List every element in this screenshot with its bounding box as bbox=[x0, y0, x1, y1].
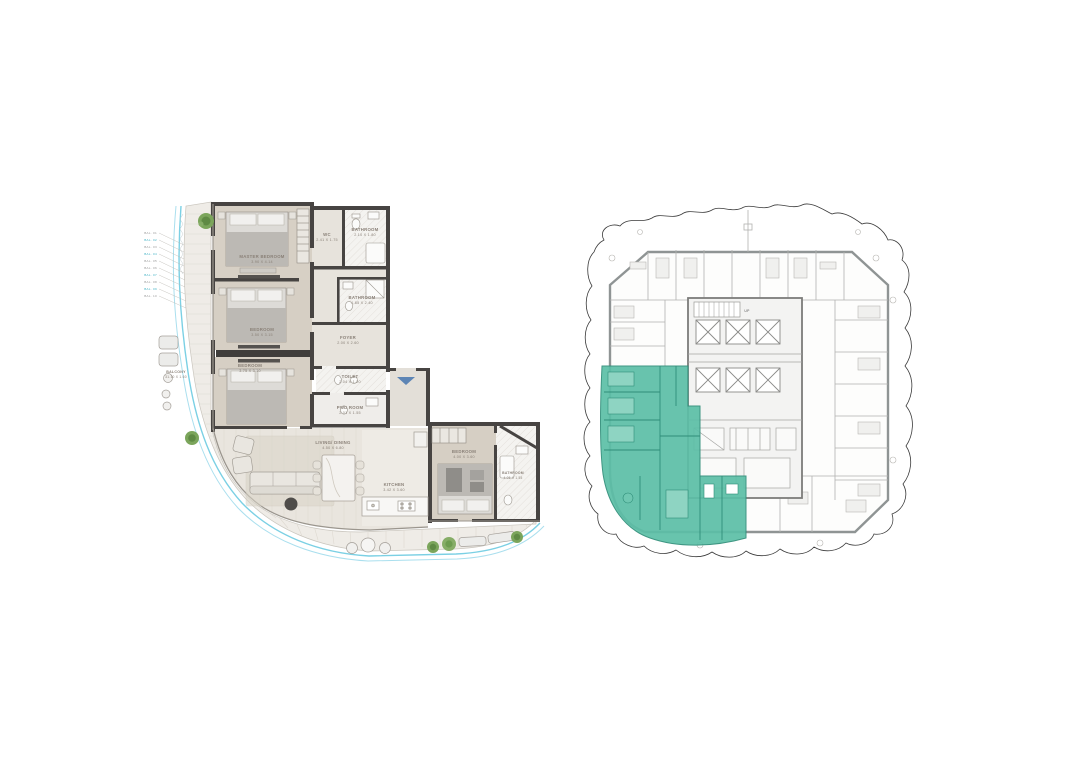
tv-console-1 bbox=[238, 275, 280, 279]
callout-label: BAL. 05 bbox=[144, 259, 157, 263]
bed-3 bbox=[219, 369, 294, 424]
tv-console-2 bbox=[238, 345, 280, 349]
callout-label: BAL. 01 bbox=[144, 231, 157, 235]
room-label-kitchen: KITCHEN bbox=[384, 482, 405, 487]
room-label-bathroom-top: BATHROOM bbox=[352, 227, 379, 232]
callout-label: BAL. 08 bbox=[144, 280, 157, 284]
room-dims: 1.85 X 2.40 bbox=[351, 301, 373, 305]
callout-label: BAL. 07 bbox=[144, 273, 157, 277]
rug bbox=[246, 436, 334, 506]
room-dims: 31.10 X 1.60 bbox=[165, 375, 187, 379]
keyplan-building: UP bbox=[601, 210, 896, 548]
room-dims: 3.42 X 3.60 bbox=[383, 488, 405, 492]
room-label-living-dining: LIVING/ DINING bbox=[315, 440, 351, 445]
callout-label: BAL. 03 bbox=[144, 245, 157, 249]
tv-console-3 bbox=[238, 359, 280, 363]
callout-label: BAL. 04 bbox=[144, 252, 157, 256]
room-dims: 4.00 X 3.60 bbox=[453, 455, 475, 459]
callout-label: BAL. 02 bbox=[144, 238, 157, 242]
room-dims: 3.50 X 3.15 bbox=[251, 333, 273, 337]
room-dims: 3.75 X 3.10 bbox=[239, 369, 261, 373]
room-label-master-bedroom: MASTER BEDROOM bbox=[239, 254, 284, 259]
side-table bbox=[285, 498, 298, 511]
fridge bbox=[414, 432, 427, 447]
room-label-balcony: BALCONY bbox=[166, 370, 186, 374]
room-label-bathroom-right: BATHROOM bbox=[502, 471, 524, 475]
room-label-pwd-room: PWD ROOM bbox=[337, 405, 364, 410]
armchair-2 bbox=[232, 456, 253, 475]
bed-4 bbox=[438, 464, 492, 514]
callout-label: BAL. 09 bbox=[144, 287, 157, 291]
keyplan-core: UP bbox=[688, 298, 802, 498]
room-label-toilet: TOILET bbox=[342, 374, 359, 379]
up-label: UP bbox=[744, 309, 750, 313]
room-label-wc: WC bbox=[323, 232, 331, 237]
sofa bbox=[250, 472, 320, 494]
dining-set bbox=[313, 455, 364, 501]
callout-label: BAL. 10 bbox=[144, 294, 157, 298]
facade-callouts bbox=[159, 233, 186, 308]
room-dims: 3.90 X 4.14 bbox=[251, 260, 273, 264]
key-plan: UP bbox=[570, 195, 940, 570]
room-dims: 2.01 X 1.55 bbox=[339, 411, 361, 415]
room-label-foyer: FOYER bbox=[340, 335, 357, 340]
callout-label: BAL. 06 bbox=[144, 266, 157, 270]
unit-floor-plan: BAL. 01 BAL. 02 BAL. 03 BAL. 04 BAL. 05 … bbox=[118, 185, 568, 595]
room-dims: 4.05 X 1.55 bbox=[503, 476, 522, 480]
room-label-bathroom-mid: BATHROOM bbox=[349, 295, 376, 300]
stair bbox=[694, 302, 740, 317]
facade-callout-labels: BAL. 01 BAL. 02 BAL. 03 BAL. 04 BAL. 05 … bbox=[144, 231, 157, 298]
room-dims: 2.04 X 1.20 bbox=[339, 380, 361, 384]
room-label-bedroom-2: BEDROOM bbox=[250, 327, 274, 332]
room-dims: 2.41 X 1.75 bbox=[316, 238, 338, 242]
room-dims: 4.50 X 6.80 bbox=[322, 446, 344, 450]
room-label-bedroom-4: BEDROOM bbox=[452, 449, 476, 454]
room-dims: 2.10 X 1.80 bbox=[354, 233, 376, 237]
floor-plan-canvas: BAL. 01 BAL. 02 BAL. 03 BAL. 04 BAL. 05 … bbox=[0, 0, 1072, 769]
room-label-bedroom-3: BEDROOM bbox=[238, 363, 262, 368]
room-dims: 2.00 X 2.60 bbox=[337, 341, 359, 345]
